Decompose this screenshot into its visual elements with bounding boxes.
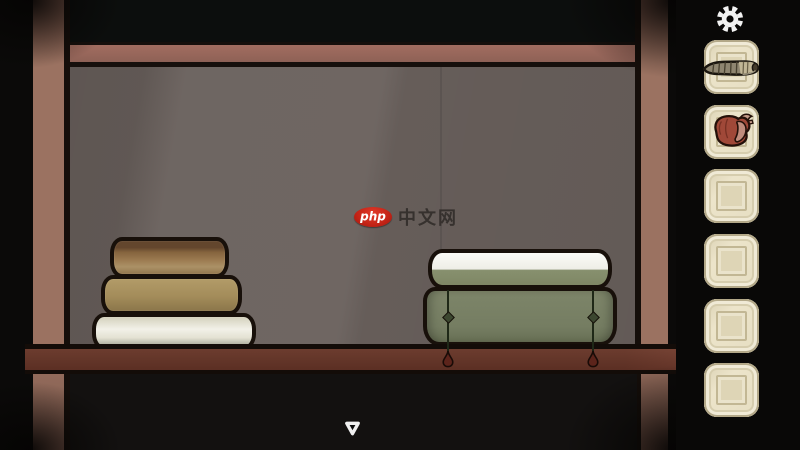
gear-icon <box>716 5 744 33</box>
frame-post-right <box>635 0 668 450</box>
frame-post-left <box>33 0 70 450</box>
cord-bob-right[interactable] <box>587 350 599 372</box>
book-brown[interactable] <box>110 237 229 278</box>
watermark-text: 中文网 <box>398 204 458 230</box>
white-green-book[interactable] <box>428 249 612 289</box>
cigar-icon <box>700 55 764 80</box>
php-logo: php <box>354 207 392 227</box>
inventory-slot-empty-5[interactable] <box>704 299 759 353</box>
cigar-item <box>704 40 759 94</box>
scene-room: php 中文网 <box>0 0 676 450</box>
book-tan[interactable] <box>101 275 242 315</box>
cabinet-top-shadow <box>70 0 637 43</box>
inventory-slot-empty-4[interactable] <box>704 234 759 288</box>
php-logo-text: php <box>360 211 386 223</box>
teardrop-bob-icon <box>442 350 454 368</box>
watermark: php 中文网 <box>354 206 458 228</box>
cord-bob-left[interactable] <box>442 350 454 372</box>
heart-icon <box>708 111 756 153</box>
settings-button[interactable] <box>716 5 744 33</box>
inventory-slot-empty-3[interactable] <box>704 169 759 223</box>
heart-item <box>704 105 759 159</box>
cabinet-top-rail <box>63 42 648 67</box>
inventory-slot-empty-6[interactable] <box>704 363 759 417</box>
teardrop-bob-icon <box>587 350 599 368</box>
triangle-down-icon <box>340 416 365 441</box>
navigate-down-button[interactable] <box>340 416 365 441</box>
inventory-sidebar <box>676 0 800 450</box>
inventory-slot-heart[interactable] <box>704 105 759 159</box>
inventory-slot-cigar[interactable] <box>704 40 759 94</box>
